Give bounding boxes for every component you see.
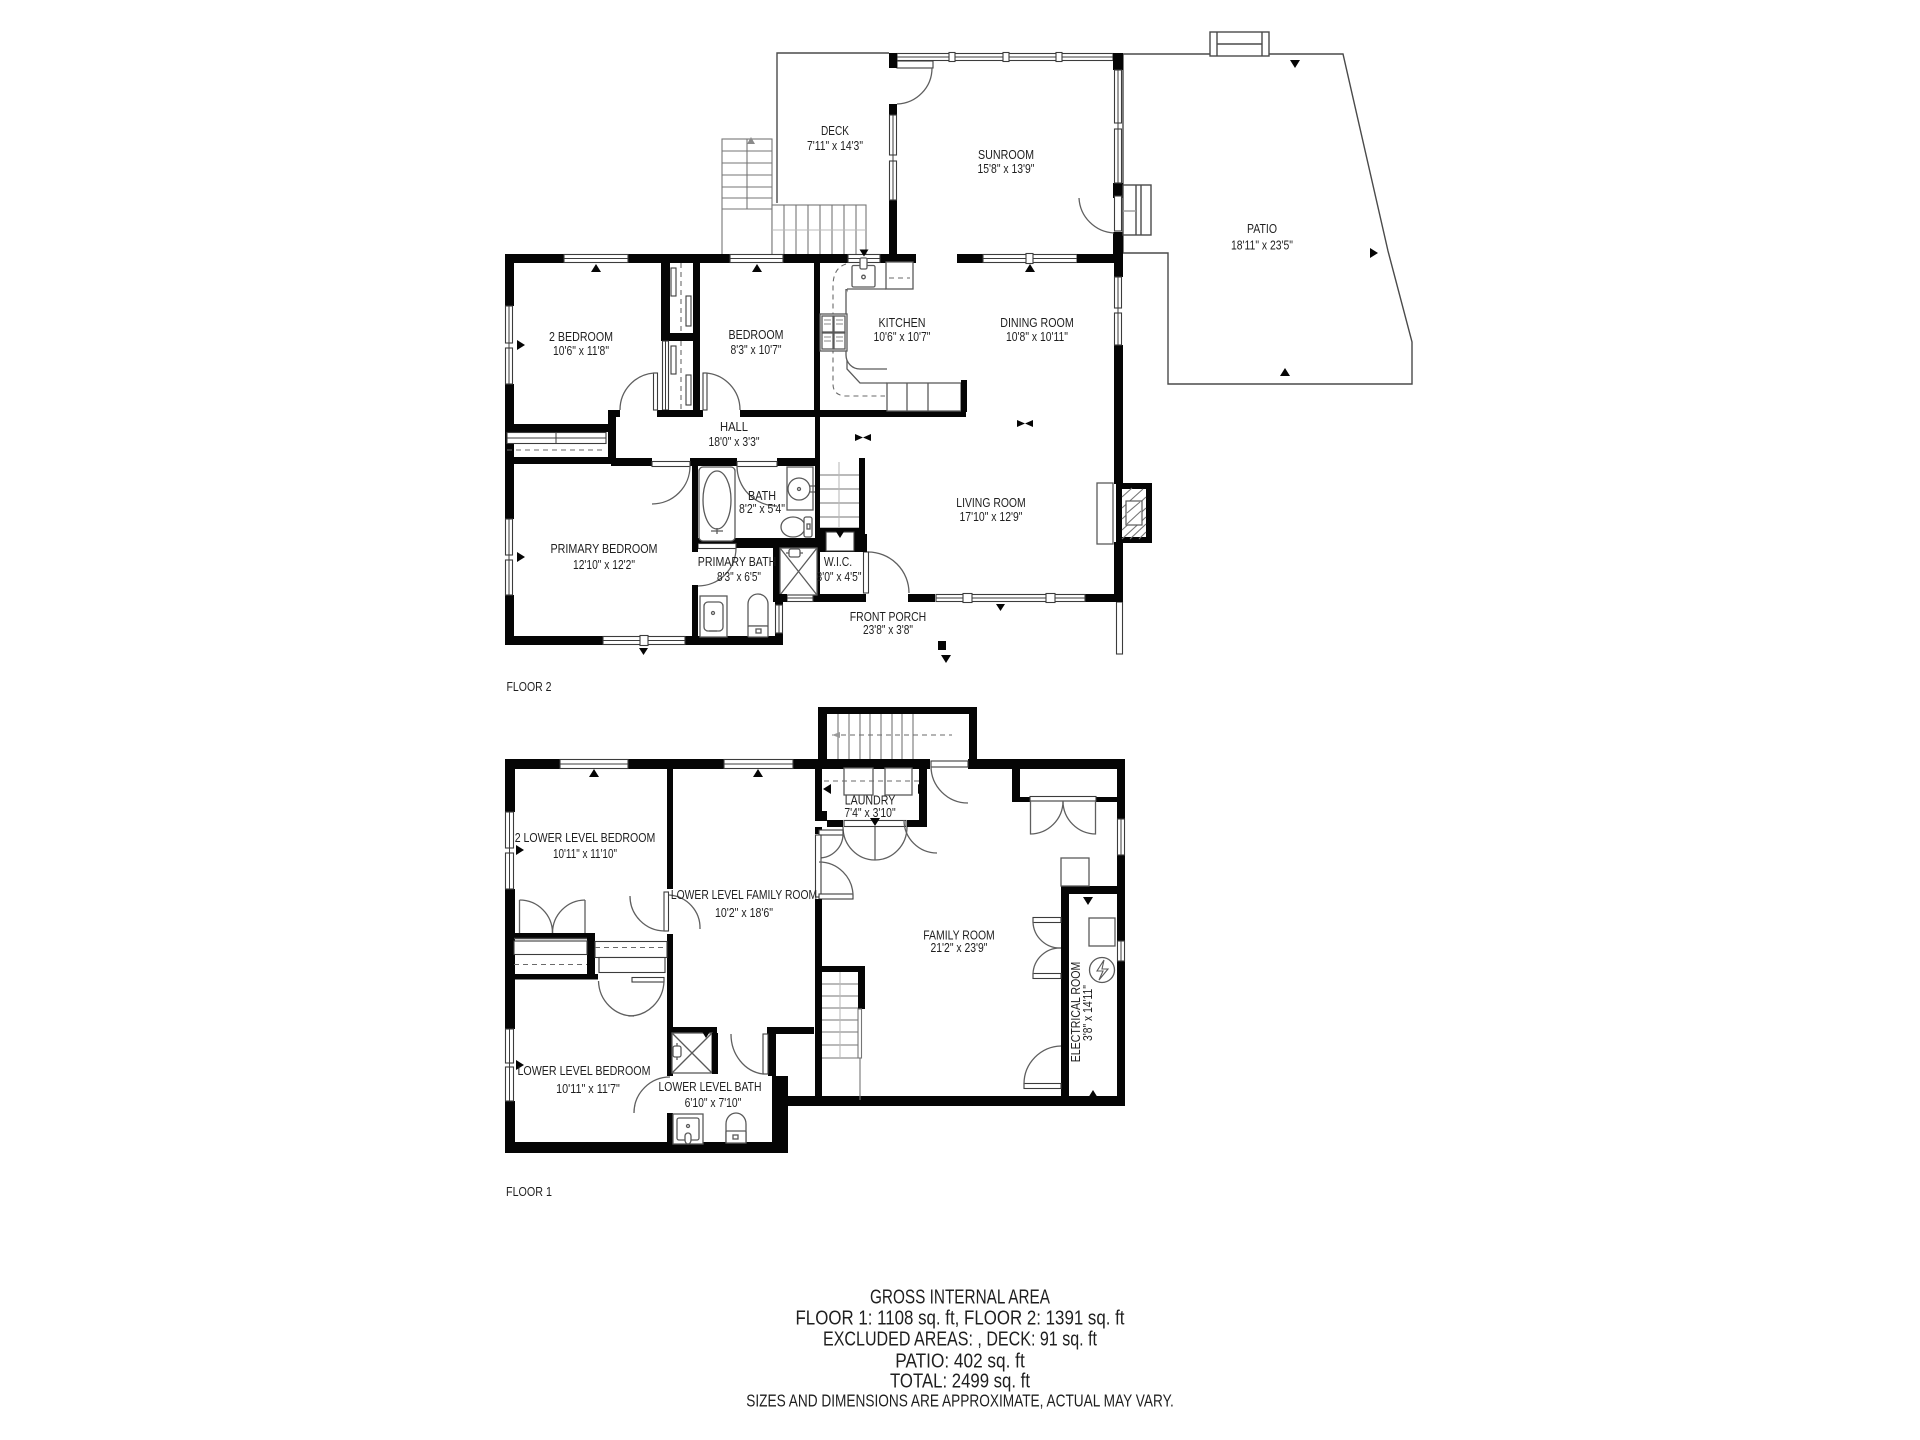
svg-text:23'8" x 3'8": 23'8" x 3'8": [863, 622, 913, 637]
svg-text:DINING ROOM: DINING ROOM: [1000, 315, 1074, 330]
svg-text:DECK: DECK: [821, 123, 849, 138]
svg-text:18'0" x 3'3": 18'0" x 3'3": [709, 434, 760, 449]
svg-text:SUNROOM: SUNROOM: [978, 147, 1034, 162]
svg-text:10'6" x 11'8": 10'6" x 11'8": [553, 343, 609, 358]
svg-text:8'2" x 5'4": 8'2" x 5'4": [739, 501, 785, 516]
svg-text:7'11" x 14'3": 7'11" x 14'3": [807, 138, 863, 153]
svg-text:TOTAL: 2499 sq. ft: TOTAL: 2499 sq. ft: [890, 1370, 1030, 1393]
svg-text:LOWER LEVEL FAMILY ROOM: LOWER LEVEL FAMILY ROOM: [671, 887, 817, 902]
svg-text:10'2" x 18'6": 10'2" x 18'6": [715, 905, 773, 920]
svg-text:FLOOR 2: FLOOR 2: [507, 680, 552, 694]
svg-text:10'8" x 10'11": 10'8" x 10'11": [1006, 329, 1068, 344]
svg-text:2 BEDROOM: 2 BEDROOM: [549, 329, 613, 344]
svg-text:PRIMARY BATH: PRIMARY BATH: [698, 554, 777, 569]
svg-text:8'3" x 10'7": 8'3" x 10'7": [731, 342, 782, 357]
svg-text:FLOOR 1: 1108 sq. ft, FLOOR 2:: FLOOR 1: 1108 sq. ft, FLOOR 2: 1391 sq. …: [796, 1307, 1125, 1330]
svg-text:18'11" x 23'5": 18'11" x 23'5": [1231, 238, 1293, 253]
svg-text:FLOOR 1: FLOOR 1: [506, 1185, 552, 1199]
svg-text:GROSS INTERNAL AREA: GROSS INTERNAL AREA: [870, 1286, 1050, 1309]
svg-text:3'8" x 14'11": 3'8" x 14'11": [1080, 985, 1095, 1041]
svg-text:8'3" x 6'5": 8'3" x 6'5": [717, 569, 761, 584]
svg-text:BEDROOM: BEDROOM: [729, 327, 784, 342]
svg-text:2 LOWER LEVEL BEDROOM: 2 LOWER LEVEL BEDROOM: [515, 830, 656, 845]
svg-text:LOWER LEVEL BEDROOM: LOWER LEVEL BEDROOM: [518, 1063, 651, 1078]
svg-text:PATIO: PATIO: [1247, 221, 1277, 236]
svg-text:LOWER LEVEL BATH: LOWER LEVEL BATH: [659, 1079, 762, 1094]
svg-text:21'2" x 23'9": 21'2" x 23'9": [931, 940, 988, 955]
svg-text:PRIMARY BEDROOM: PRIMARY BEDROOM: [551, 541, 658, 556]
svg-text:17'10" x 12'9": 17'10" x 12'9": [960, 509, 1023, 524]
svg-text:3'0" x 4'5": 3'0" x 4'5": [817, 569, 862, 584]
svg-text:10'11" x 11'7": 10'11" x 11'7": [556, 1081, 620, 1096]
svg-text:EXCLUDED AREAS: , DECK: 91 sq.: EXCLUDED AREAS: , DECK: 91 sq. ft: [823, 1328, 1097, 1351]
svg-text:HALL: HALL: [720, 419, 748, 434]
svg-text:7'4" x 3'10": 7'4" x 3'10": [844, 805, 896, 820]
svg-text:15'8" x 13'9": 15'8" x 13'9": [978, 161, 1035, 176]
svg-text:W.I.C.: W.I.C.: [824, 554, 852, 569]
svg-text:10'6" x 10'7": 10'6" x 10'7": [874, 329, 931, 344]
svg-text:LIVING ROOM: LIVING ROOM: [956, 495, 1025, 510]
svg-text:12'10" x 12'2": 12'10" x 12'2": [573, 557, 635, 572]
svg-text:10'11" x 11'10": 10'11" x 11'10": [553, 846, 617, 861]
svg-text:SIZES AND DIMENSIONS ARE APPRO: SIZES AND DIMENSIONS ARE APPROXIMATE, AC…: [746, 1391, 1174, 1411]
svg-text:KITCHEN: KITCHEN: [879, 315, 926, 330]
svg-text:6'10" x 7'10": 6'10" x 7'10": [685, 1095, 742, 1110]
